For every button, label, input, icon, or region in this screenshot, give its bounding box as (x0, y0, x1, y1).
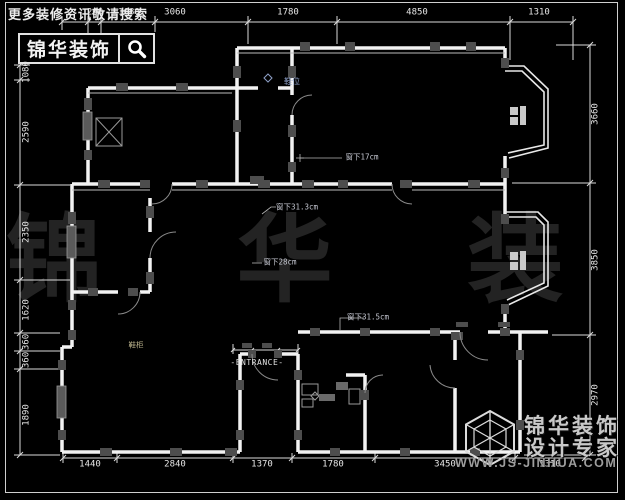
footer-website[interactable]: WWW.JS-JINHUA.COM (455, 456, 617, 470)
annotation-window-sill-3: 窗下28cm (263, 258, 296, 266)
dim-label: 360 (23, 352, 32, 368)
dim-label: 360 (23, 334, 32, 350)
fixture-fills (319, 382, 348, 401)
dim-label: 1310 (528, 9, 550, 18)
header-logo[interactable]: 锦华装饰 (18, 33, 155, 64)
dim-label: 3060 (164, 9, 186, 18)
floorplan-sheet: 锦 华 装 饰 (0, 0, 625, 500)
search-icon[interactable] (118, 35, 153, 62)
annotation-window-sill-4: 窗下31.5cm (347, 313, 389, 321)
annotation-shoe-cabinet: 鞋柜 (129, 341, 144, 349)
dim-label: 2350 (23, 221, 32, 243)
annotation-window-sill-1: 窗下17cm (345, 153, 378, 161)
header-logo-text: 锦华装饰 (20, 35, 118, 62)
dim-label: 1780 (277, 9, 299, 18)
walls-layer (62, 48, 548, 452)
annotation-window-sill-2: 窗下31.3cm (276, 203, 318, 211)
dim-label: 1620 (23, 299, 32, 321)
dim-label: 3850 (592, 249, 601, 271)
fixtures-layer (96, 74, 360, 407)
annotation-shoe-position: 鞋位 (284, 78, 300, 86)
dimension-lines-layer (14, 16, 596, 463)
bay-window-mullions (510, 106, 526, 270)
footer-brand-line1: 锦华装饰 (524, 416, 620, 438)
dim-label: 3450 (434, 461, 456, 470)
dim-label: 3660 (592, 103, 601, 125)
dim-label: 260 (87, 9, 103, 18)
dim-label: 2840 (164, 461, 186, 470)
dim-label: 1370 (251, 461, 273, 470)
dim-label: 1890 (23, 404, 32, 426)
dim-label: 2590 (23, 121, 32, 143)
annotation-entrance: -ENTRANCE- (230, 359, 283, 367)
dim-label: 2970 (592, 384, 601, 406)
dim-label: 1080 (23, 61, 32, 83)
dim-label: 4850 (406, 9, 428, 18)
dim-label: 1780 (322, 461, 344, 470)
door-arcs-layer (118, 95, 488, 393)
footer-brand-text: 锦华装饰 设计专家 (524, 416, 620, 460)
dim-label: 1440 (79, 461, 101, 470)
dim-label: 1080 (118, 9, 140, 18)
